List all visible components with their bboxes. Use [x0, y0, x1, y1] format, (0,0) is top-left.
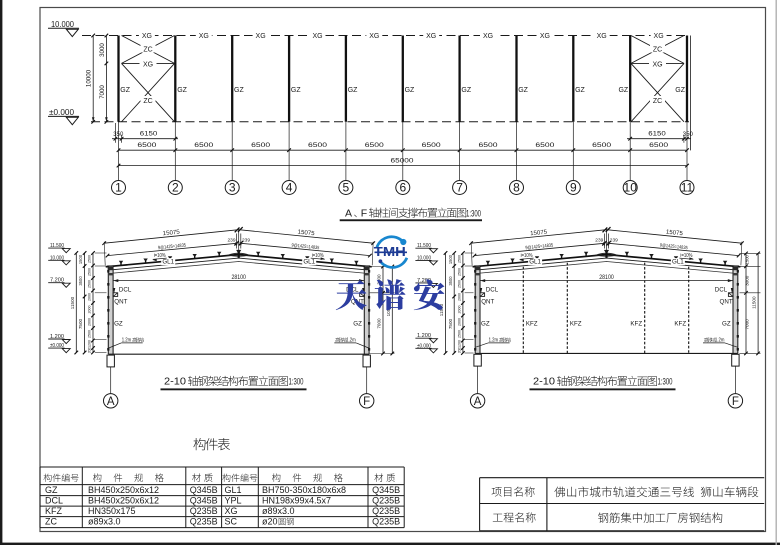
svg-text:XG: XG — [483, 33, 493, 40]
svg-text:KFZ: KFZ — [45, 506, 63, 516]
svg-text:F: F — [732, 396, 739, 408]
svg-text:1200: 1200 — [458, 340, 462, 348]
svg-text:2500: 2500 — [458, 280, 462, 288]
svg-text:GZ: GZ — [461, 87, 471, 94]
svg-text:YPL: YPL — [225, 496, 242, 506]
svg-text:A: A — [345, 208, 352, 220]
svg-text:KFZ: KFZ — [526, 320, 538, 327]
svg-text:6: 6 — [399, 181, 406, 195]
svg-text:QNT: QNT — [720, 299, 733, 306]
svg-text:ZC: ZC — [143, 47, 152, 54]
svg-text:6500: 6500 — [137, 142, 156, 149]
svg-text:A: A — [474, 396, 482, 408]
svg-text:3: 3 — [229, 181, 236, 195]
svg-text:1:300: 1:300 — [466, 209, 481, 219]
svg-text:GZ: GZ — [177, 87, 187, 94]
svg-text:GZ: GZ — [353, 320, 362, 327]
svg-text:6500: 6500 — [194, 142, 213, 149]
svg-text:2000: 2000 — [458, 293, 462, 301]
svg-text:XG: XG — [597, 33, 607, 40]
svg-text:DCL: DCL — [45, 496, 63, 506]
svg-text:7500: 7500 — [78, 318, 83, 329]
svg-text:ZC: ZC — [143, 98, 152, 105]
svg-text:KFZ: KFZ — [570, 320, 582, 327]
svg-text:2500: 2500 — [458, 255, 462, 263]
svg-text:1:300: 1:300 — [289, 377, 304, 387]
svg-text:2000: 2000 — [88, 318, 92, 326]
svg-text:A: A — [107, 396, 115, 408]
svg-text:SC: SC — [225, 517, 238, 527]
svg-text:7000: 7000 — [99, 85, 106, 99]
svg-text:HN198x99x4.5x7: HN198x99x4.5x7 — [262, 496, 331, 506]
svg-text:2-10: 2-10 — [533, 377, 555, 388]
svg-text:GZ: GZ — [481, 320, 490, 327]
svg-text:2500: 2500 — [458, 330, 462, 338]
svg-text:239: 239 — [610, 237, 619, 242]
svg-text:±0.000: ±0.000 — [49, 108, 75, 117]
svg-text:KFZ: KFZ — [674, 320, 686, 327]
svg-text:3000: 3000 — [99, 43, 106, 57]
svg-text:6500: 6500 — [365, 142, 384, 149]
svg-text:GZ: GZ — [722, 320, 731, 327]
svg-text:1500: 1500 — [448, 254, 453, 264]
svg-text:Q235B: Q235B — [372, 517, 400, 527]
svg-text:HN350x175: HN350x175 — [88, 506, 136, 516]
svg-text:6500: 6500 — [251, 142, 270, 149]
svg-text:XG: XG — [199, 33, 209, 40]
svg-text:ø89x3.0: ø89x3.0 — [262, 506, 295, 516]
svg-text:1500: 1500 — [744, 254, 749, 264]
svg-text:6150: 6150 — [140, 131, 158, 138]
svg-text:GZ: GZ — [234, 87, 244, 94]
svg-text:2500: 2500 — [88, 330, 92, 338]
svg-text:350: 350 — [683, 132, 694, 138]
svg-text:XG: XG — [652, 61, 662, 68]
svg-text:11: 11 — [681, 181, 694, 195]
svg-text:DCL: DCL — [715, 287, 728, 294]
svg-text:1:300: 1:300 — [658, 377, 673, 387]
svg-text:GL1: GL1 — [162, 258, 174, 265]
svg-text:7500: 7500 — [448, 318, 453, 329]
svg-text:GZ: GZ — [114, 320, 123, 327]
svg-text:2500: 2500 — [458, 268, 462, 276]
svg-text:QNT: QNT — [481, 299, 494, 306]
svg-text:2: 2 — [172, 181, 179, 195]
svg-text:1500: 1500 — [78, 254, 83, 264]
svg-text:ø89x3.0: ø89x3.0 — [88, 517, 121, 527]
svg-text:5: 5 — [343, 181, 350, 195]
svg-text:XG: XG — [142, 33, 152, 40]
svg-text:9: 9 — [570, 181, 577, 195]
svg-text:ZC: ZC — [45, 517, 57, 527]
svg-text:6500: 6500 — [422, 142, 441, 149]
svg-text:7000: 7000 — [377, 318, 382, 329]
svg-text:Q235B: Q235B — [372, 506, 400, 516]
svg-text:2500: 2500 — [88, 268, 92, 276]
svg-text:XG: XG — [369, 33, 379, 40]
svg-text:KFZ: KFZ — [630, 320, 642, 327]
svg-text:GL1: GL1 — [303, 258, 315, 265]
svg-text:2500: 2500 — [88, 255, 92, 263]
svg-text:ZC: ZC — [653, 47, 662, 54]
svg-text:6500: 6500 — [649, 142, 668, 149]
svg-text:XG: XG — [312, 33, 322, 40]
svg-text:Q345B: Q345B — [372, 485, 400, 495]
svg-text:6500: 6500 — [592, 142, 611, 149]
svg-text:BH450x250x6x12: BH450x250x6x12 — [88, 496, 159, 506]
svg-text:GZ: GZ — [45, 485, 58, 495]
svg-text:XG: XG — [540, 33, 550, 40]
svg-text:GZ: GZ — [618, 87, 628, 94]
svg-text:28100: 28100 — [599, 274, 614, 281]
svg-text:i=10%: i=10% — [521, 253, 533, 259]
svg-text:Q235B: Q235B — [190, 506, 218, 516]
svg-text:Q235B: Q235B — [372, 496, 400, 506]
svg-text:28100: 28100 — [231, 274, 246, 281]
svg-text:239: 239 — [242, 237, 251, 242]
svg-text:1: 1 — [115, 181, 122, 195]
svg-text:Q345B: Q345B — [190, 496, 218, 506]
svg-text:XG: XG — [654, 33, 664, 40]
svg-text:8: 8 — [513, 181, 520, 195]
svg-text:GZ: GZ — [675, 87, 685, 94]
svg-text:2000: 2000 — [88, 293, 92, 301]
svg-text:7: 7 — [456, 181, 463, 195]
svg-text:ZC: ZC — [653, 98, 662, 105]
svg-text:GL1: GL1 — [225, 485, 242, 495]
svg-text:DCL: DCL — [486, 287, 499, 294]
svg-text:7000: 7000 — [744, 319, 749, 330]
svg-text:4: 4 — [286, 181, 293, 195]
svg-text:3500: 3500 — [78, 276, 83, 286]
svg-text:Q345B: Q345B — [190, 485, 218, 495]
svg-text:BH750-350x180x6x8: BH750-350x180x6x8 — [262, 485, 346, 495]
svg-text:BH450x250x6x12: BH450x250x6x12 — [88, 485, 159, 495]
svg-text:Q235B: Q235B — [190, 517, 218, 527]
svg-text:10.000: 10.000 — [51, 20, 75, 29]
svg-text:3000: 3000 — [744, 275, 749, 286]
svg-text:239: 239 — [595, 237, 604, 242]
svg-text:10: 10 — [624, 181, 638, 195]
svg-text:200: 200 — [88, 348, 92, 354]
svg-text:1200: 1200 — [88, 340, 92, 348]
svg-text:XG: XG — [225, 506, 238, 516]
svg-text:XG: XG — [143, 61, 153, 68]
svg-text:3500: 3500 — [448, 276, 453, 286]
svg-text:6500: 6500 — [308, 142, 327, 149]
svg-text:6500: 6500 — [479, 142, 498, 149]
svg-text:6150: 6150 — [648, 131, 666, 138]
svg-text:XG: XG — [426, 33, 436, 40]
svg-text:239: 239 — [228, 237, 237, 242]
svg-text:GZ: GZ — [291, 87, 301, 94]
svg-text:2000: 2000 — [458, 318, 462, 326]
svg-text:2-10: 2-10 — [164, 377, 186, 388]
svg-text:GZ: GZ — [518, 87, 528, 94]
svg-text:65000: 65000 — [391, 157, 414, 164]
svg-text:GL1: GL1 — [672, 258, 684, 265]
svg-text:2500: 2500 — [88, 280, 92, 288]
svg-text:GZ: GZ — [120, 87, 130, 94]
svg-text:2000: 2000 — [88, 306, 92, 314]
svg-text:F: F — [363, 396, 370, 408]
svg-text:2000: 2000 — [458, 306, 462, 314]
svg-text:XG: XG — [256, 33, 266, 40]
svg-text:DCL: DCL — [119, 287, 132, 294]
svg-text:GZ: GZ — [348, 87, 358, 94]
svg-text:11500: 11500 — [752, 296, 757, 309]
svg-text:QNT: QNT — [114, 299, 127, 306]
svg-text:10000: 10000 — [86, 69, 93, 87]
svg-text:GZ: GZ — [405, 87, 415, 94]
svg-text:F: F — [361, 208, 367, 220]
svg-text:11500: 11500 — [70, 296, 75, 309]
svg-text:ø20: ø20 — [262, 517, 278, 527]
svg-text:i=10%: i=10% — [154, 253, 166, 259]
svg-text:GZ: GZ — [575, 87, 585, 94]
svg-text:6500: 6500 — [535, 142, 554, 149]
svg-text:TMH: TMH — [374, 245, 406, 259]
svg-text:200: 200 — [458, 348, 462, 354]
svg-text:GL1: GL1 — [529, 258, 541, 265]
